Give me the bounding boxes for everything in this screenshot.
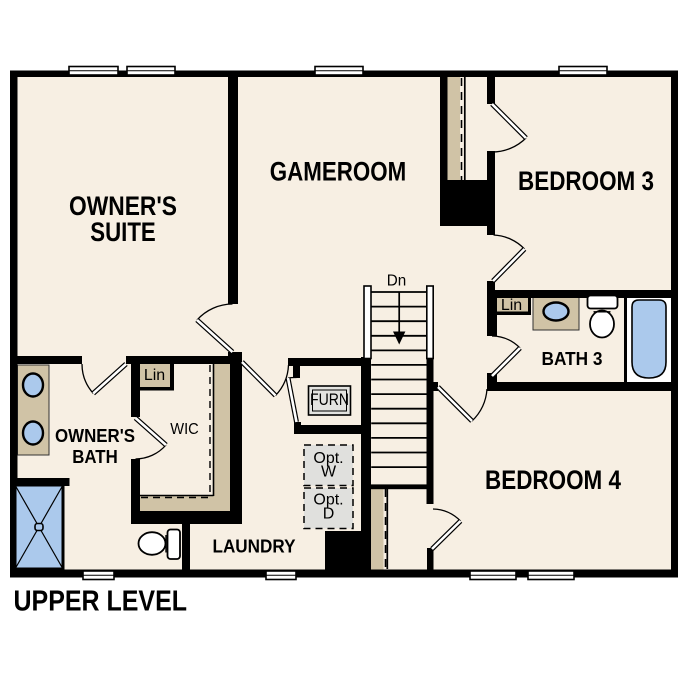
svg-text:Lin: Lin [501,297,522,314]
svg-text:SUITE: SUITE [90,217,156,247]
svg-text:BATH 3: BATH 3 [542,349,603,369]
svg-text:WIC: WIC [170,421,199,438]
svg-text:FURN: FURN [310,390,349,409]
svg-text:W: W [321,464,337,481]
svg-text:OWNER'S: OWNER'S [55,426,135,446]
svg-text:D: D [323,506,335,523]
svg-text:BEDROOM 3: BEDROOM 3 [518,166,654,196]
svg-text:LAUNDRY: LAUNDRY [213,537,296,557]
svg-text:BATH: BATH [72,447,118,467]
svg-text:Dn: Dn [387,273,407,290]
svg-text:BEDROOM 4: BEDROOM 4 [485,465,621,495]
svg-text:UPPER LEVEL: UPPER LEVEL [14,586,188,618]
svg-text:GAMEROOM: GAMEROOM [270,157,407,187]
svg-text:Lin: Lin [144,367,165,384]
